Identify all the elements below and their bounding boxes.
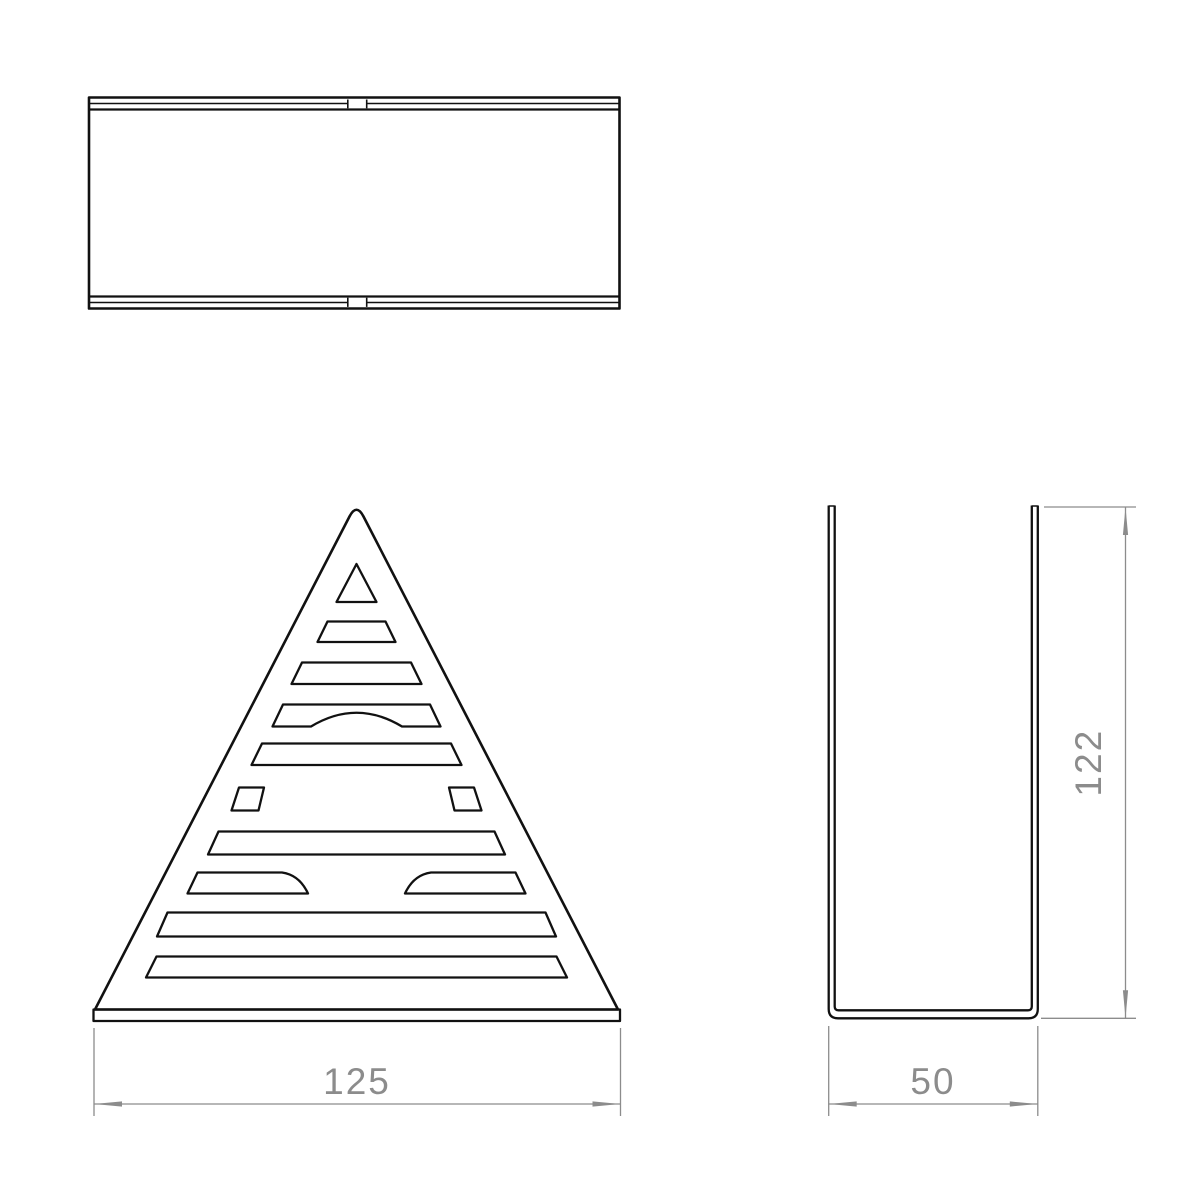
technical-drawing: 125 50 122 [0,0,1200,1200]
arrow-left [94,1101,122,1106]
slot-row-8-right [405,873,526,894]
slot-row-9 [157,913,556,937]
bottom-flange-notch [349,298,367,307]
dimension-side-width: 50 [829,1026,1038,1116]
top-flange-notch [349,100,367,108]
arrow-left [829,1101,857,1106]
top-view [89,98,620,309]
dimension-side-height: 122 [1041,507,1136,1018]
arrow-right [1010,1101,1038,1106]
triangle-outline [95,510,618,1010]
dimension-front-width: 125 [94,1028,621,1116]
drawing-canvas: 125 50 122 [0,0,1200,1200]
side-view [829,506,1038,1019]
slot-row-3 [292,663,422,685]
slot-row-5 [252,744,462,766]
dim-value-125: 125 [323,1061,391,1102]
slot-row-4-arched [273,705,441,727]
dim-value-50: 50 [910,1061,955,1102]
channel-outer-profile [829,506,1038,1019]
slot-row-10 [146,957,567,978]
slot-row-6-left [232,788,265,811]
arrow-right [593,1101,621,1106]
slot-triangle [337,564,377,602]
slot-row-6-right [449,788,482,811]
arrow-up [1123,507,1128,535]
dim-value-122: 122 [1068,729,1109,797]
slot-row-2 [318,622,396,643]
channel-inner-profile [835,506,1032,1011]
base-strip [94,1010,621,1022]
slot-row-7 [208,832,505,855]
top-view-outline [89,98,620,309]
slot-row-8-left [188,873,309,894]
front-view [94,510,621,1021]
arrow-down [1123,990,1128,1018]
